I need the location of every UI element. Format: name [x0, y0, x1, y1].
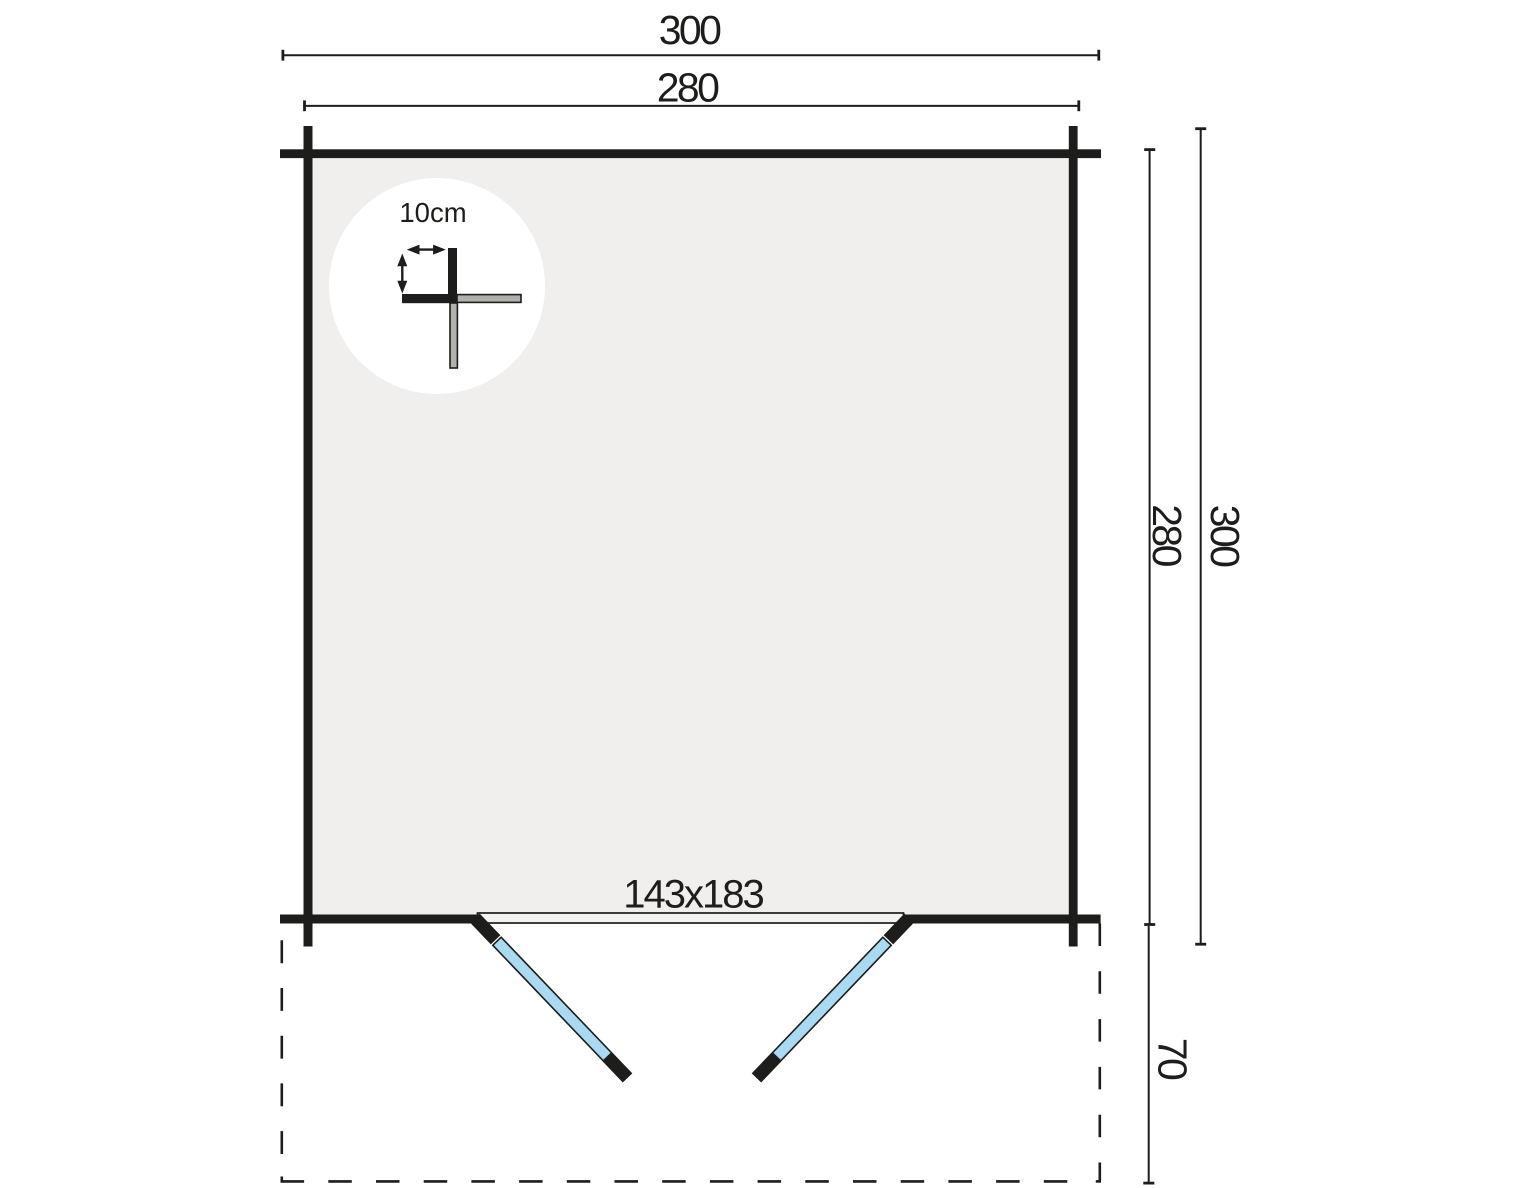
- svg-text:300: 300: [1202, 505, 1248, 567]
- svg-text:143x183: 143x183: [623, 872, 763, 916]
- svg-text:280: 280: [1144, 504, 1190, 566]
- svg-text:280: 280: [657, 64, 719, 110]
- svg-text:10cm: 10cm: [399, 197, 466, 228]
- svg-text:70: 70: [1150, 1038, 1196, 1080]
- svg-text:300: 300: [659, 7, 721, 53]
